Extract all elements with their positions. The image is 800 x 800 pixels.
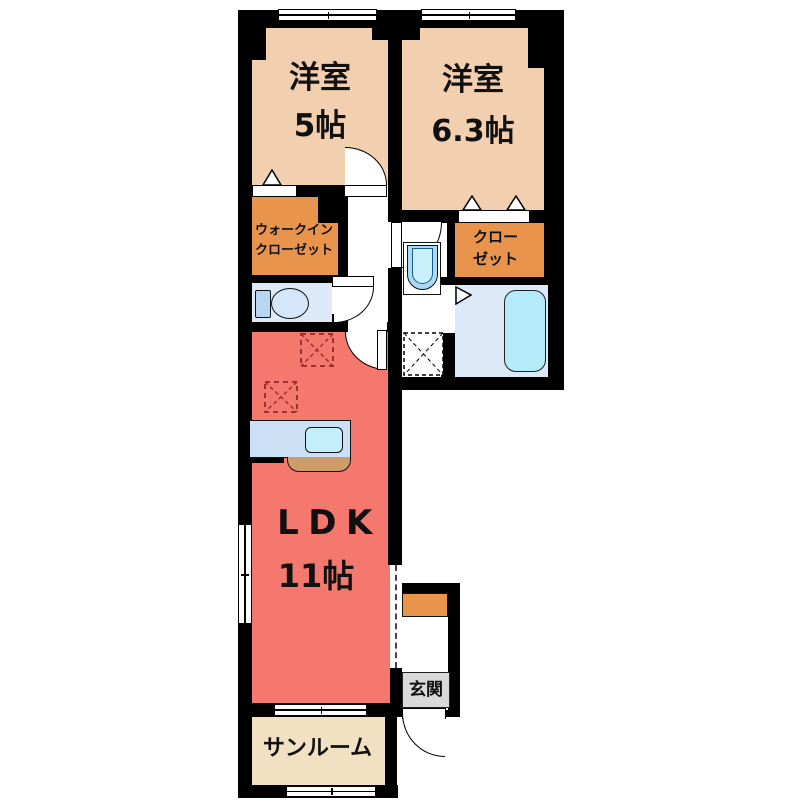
room-bedroom5-size: 5帖 <box>252 106 388 146</box>
wall <box>548 285 564 390</box>
wall <box>385 717 397 787</box>
open-boundary-dashed-line <box>395 565 397 668</box>
floor-plan: 洋室 5帖 洋室 6.3帖 ウォークイン クローゼット クロー ゼット LDK … <box>0 0 800 800</box>
toilet-tank-icon <box>255 290 271 318</box>
room-wic-label-line1: ウォークイン <box>250 223 338 240</box>
bath-fold-door-icon <box>455 286 472 305</box>
closet-sliding-door <box>458 210 530 223</box>
room-bedroom63-label: 洋室 <box>402 60 544 100</box>
door-leaf <box>332 276 374 287</box>
wall <box>338 197 348 277</box>
door-leaf <box>377 330 387 370</box>
window <box>286 786 376 797</box>
wall <box>238 275 338 283</box>
window <box>274 704 367 716</box>
wall <box>388 10 402 222</box>
room-bedroom63-size: 6.3帖 <box>402 110 544 152</box>
wall <box>544 10 564 285</box>
wall <box>238 10 252 798</box>
fold-door-triangle-icon <box>506 195 526 211</box>
fold-door-triangle-icon <box>262 169 282 186</box>
room-bedroom5-label: 洋室 <box>252 58 388 98</box>
room-ldk-size: 11帖 <box>246 556 386 598</box>
wall <box>388 268 402 326</box>
bathtub-icon <box>504 290 546 372</box>
room-closet-label-line2: ゼット <box>447 249 544 269</box>
equipment-spot-icon <box>264 381 298 413</box>
door-leaf <box>391 222 402 268</box>
wall <box>530 210 544 223</box>
window <box>278 9 377 21</box>
entrance-door-arc <box>402 713 445 757</box>
room-sunroom-label: サンルーム <box>250 733 385 765</box>
kitchen-sink-icon <box>305 427 343 453</box>
wall <box>388 377 564 390</box>
toilet-bowl-icon <box>271 288 309 319</box>
washing-machine-pan-icon <box>403 332 444 376</box>
wic-sliding-door <box>252 185 297 197</box>
door-leaf <box>344 185 387 197</box>
window <box>421 9 516 21</box>
wall <box>297 185 344 197</box>
bath-door-gap <box>441 285 455 333</box>
wall <box>318 197 338 223</box>
shoe-cabinet <box>402 593 448 617</box>
washbasin-inner-icon <box>412 248 433 284</box>
wall <box>441 277 564 285</box>
room-closet-label-line1: クロー <box>447 227 544 247</box>
kitchen-counter-trim <box>287 457 351 472</box>
room-ldk-label: LDK <box>250 503 400 545</box>
door-arc <box>334 287 374 323</box>
equipment-spot-icon <box>300 333 334 367</box>
fold-door-triangle-icon <box>462 195 482 211</box>
room-entrance-label: 玄関 <box>402 672 450 708</box>
wall <box>238 322 345 332</box>
room-wic-label-line2: クローゼット <box>250 243 338 260</box>
